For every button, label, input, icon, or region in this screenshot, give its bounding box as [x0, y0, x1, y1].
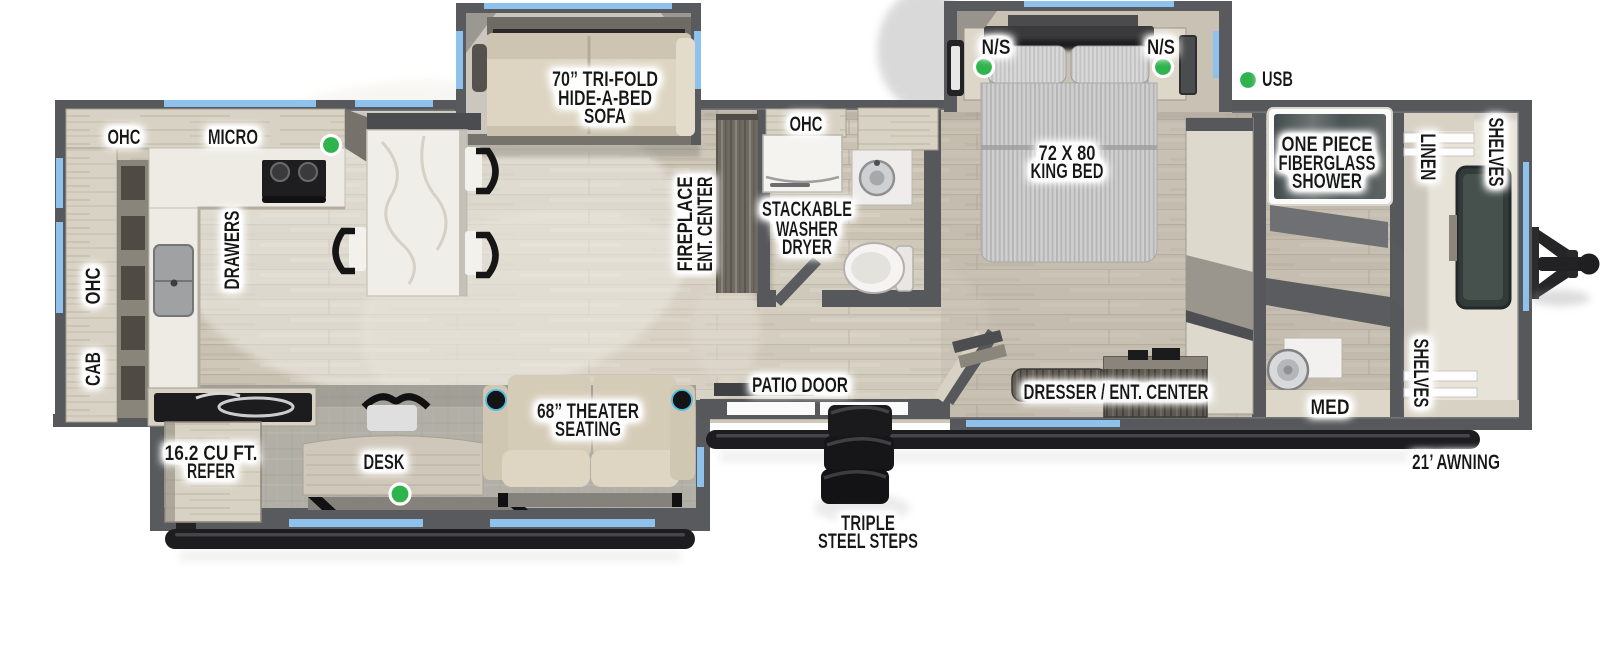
svg-text:DESK: DESK — [364, 451, 405, 474]
svg-text:MICRO: MICRO — [208, 126, 258, 149]
svg-text:ENT. CENTER: ENT. CENTER — [694, 177, 717, 272]
svg-text:REFER: REFER — [187, 460, 235, 483]
svg-text:OHC: OHC — [108, 126, 141, 149]
svg-text:21’ AWNING: 21’ AWNING — [1412, 451, 1500, 474]
svg-text:SHELVES: SHELVES — [1409, 339, 1432, 408]
svg-text:DRYER: DRYER — [782, 236, 832, 259]
svg-text:SEATING: SEATING — [555, 418, 621, 441]
svg-text:DRESSER / ENT. CENTER: DRESSER / ENT. CENTER — [1024, 381, 1209, 404]
svg-text:CAB: CAB — [82, 352, 105, 386]
svg-text:SHELVES: SHELVES — [1484, 118, 1507, 187]
svg-text:N/S: N/S — [982, 36, 1011, 59]
svg-text:KING BED: KING BED — [1031, 160, 1104, 183]
svg-text:PATIO DOOR: PATIO DOOR — [752, 374, 848, 397]
svg-text:STEEL STEPS: STEEL STEPS — [818, 530, 918, 553]
svg-text:DRAWERS: DRAWERS — [221, 211, 244, 290]
svg-text:LINEN: LINEN — [1416, 134, 1439, 181]
svg-text:SOFA: SOFA — [584, 105, 626, 128]
svg-text:OHC: OHC — [82, 268, 105, 305]
svg-text:N/S: N/S — [1147, 36, 1175, 59]
svg-text:SHOWER: SHOWER — [1292, 170, 1362, 193]
svg-text:USB: USB — [1262, 68, 1293, 91]
svg-text:MED: MED — [1311, 396, 1350, 419]
svg-text:OHC: OHC — [790, 113, 823, 136]
